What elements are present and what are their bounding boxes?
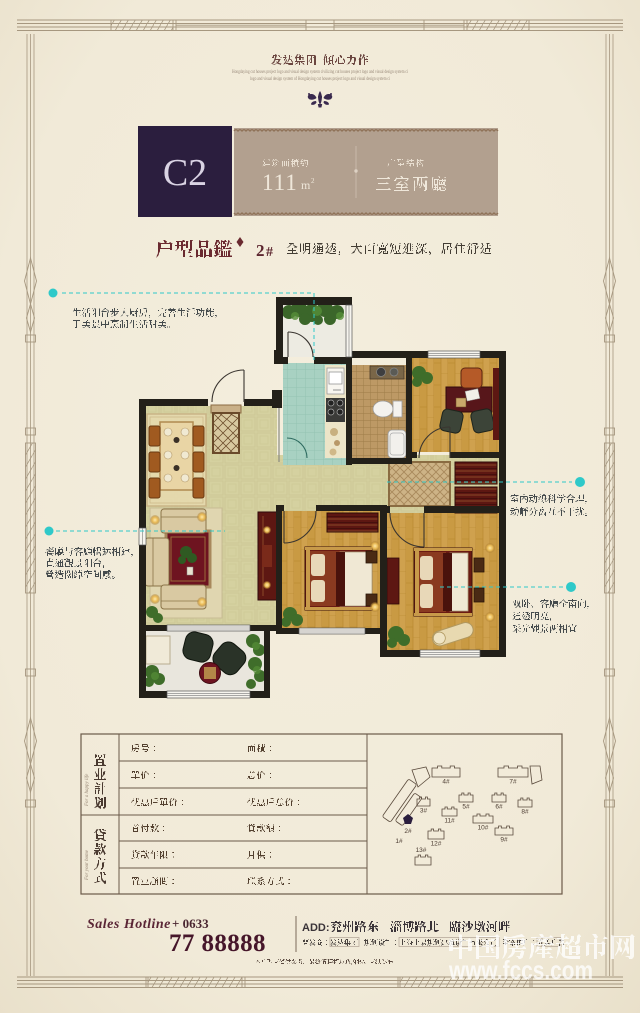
svg-text:10#: 10# — [478, 825, 489, 832]
svg-text:13#: 13# — [416, 847, 427, 854]
svg-text:77 88888: 77 88888 — [169, 930, 266, 957]
svg-text:www.fccs.com: www.fccs.com — [448, 955, 593, 985]
svg-text:For your home: For your home — [85, 849, 90, 881]
svg-text:C2: C2 — [163, 152, 207, 194]
svg-text:9#: 9# — [500, 837, 508, 844]
svg-text:5#: 5# — [462, 804, 470, 811]
svg-text:ADD:: ADD: — [302, 922, 330, 934]
svg-text:logo and visual design system: logo and visual design system of Hongday… — [250, 77, 390, 82]
svg-text:2: 2 — [256, 241, 265, 260]
svg-text:6#: 6# — [495, 804, 503, 811]
svg-text:12#: 12# — [431, 841, 442, 848]
svg-text:1#: 1# — [395, 838, 403, 845]
svg-text:4#: 4# — [442, 779, 450, 786]
svg-text:For a happy life: For a happy life — [85, 773, 90, 807]
svg-text:11#: 11# — [444, 818, 455, 825]
svg-text:m: m — [301, 178, 311, 192]
svg-text:7#: 7# — [509, 779, 517, 786]
svg-text:#: # — [266, 245, 273, 260]
svg-text:3#: 3# — [420, 808, 428, 815]
svg-text:111: 111 — [262, 170, 298, 195]
svg-text:2#: 2# — [404, 828, 412, 835]
svg-text:Hongdaying cut houses project: Hongdaying cut houses project logo and v… — [232, 70, 408, 75]
svg-text:2: 2 — [311, 177, 315, 185]
svg-text:+ 0633: + 0633 — [172, 916, 209, 931]
svg-text:8#: 8# — [521, 809, 529, 816]
svg-text:Sales Hotline: Sales Hotline — [87, 917, 171, 932]
